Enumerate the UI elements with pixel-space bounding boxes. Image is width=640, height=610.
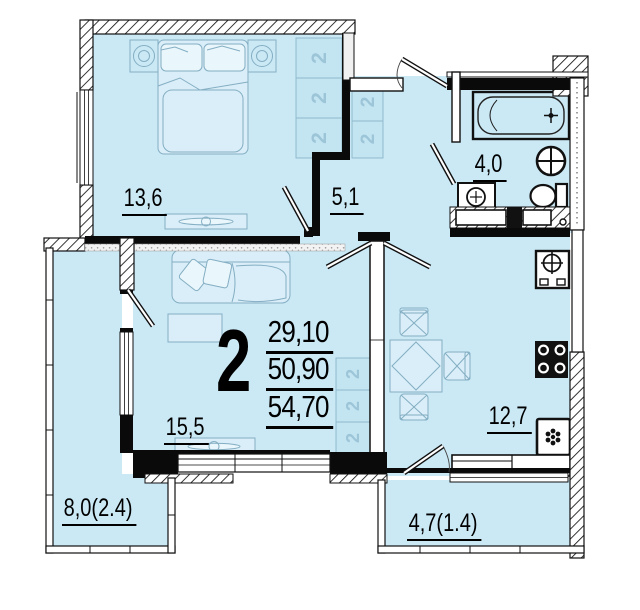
- stove-icon: [535, 341, 568, 378]
- vent-shaft-icon: [450, 207, 570, 228]
- window-icon: [120, 332, 133, 415]
- sofa-icon: [172, 250, 290, 303]
- dining-table-icon: [390, 340, 442, 392]
- bed-icon: [158, 40, 248, 154]
- bathtub-icon: [473, 92, 569, 139]
- window-icon: [77, 90, 93, 185]
- svg-text:2: 2: [358, 134, 379, 145]
- svg-text:2: 2: [308, 52, 331, 64]
- svg-text:2: 2: [358, 97, 379, 108]
- fridge-icon: [537, 419, 570, 455]
- total-area-value: 54,70: [266, 389, 333, 429]
- wardrobe-hanger-icon: 2 2 2: [336, 358, 370, 454]
- floor-plan: 2 2 2 2 2 2 2 2: [0, 0, 640, 610]
- svg-text:2: 2: [343, 401, 363, 411]
- svg-text:2: 2: [308, 132, 331, 144]
- heated-area-value: 50,90: [266, 351, 333, 391]
- bathroom-area-label: 4,0: [473, 150, 506, 182]
- svg-text:2: 2: [308, 92, 331, 104]
- living-area-value: 29,10: [266, 314, 333, 354]
- wardrobe-hanger-icon: 2 2: [352, 84, 383, 158]
- coffee-table-icon: [168, 314, 222, 342]
- toilet-icon: [531, 184, 568, 207]
- dresser-tv-icon: [165, 214, 247, 229]
- svg-text:2: 2: [343, 369, 363, 379]
- balcony-bottom-area-label: 4,7(1.4): [407, 509, 482, 541]
- chair-icon: [444, 352, 470, 380]
- rooms-count-badge: 2: [216, 330, 251, 392]
- balcony-left-area-label: 8,0(2.4): [62, 494, 137, 526]
- window-icon: [450, 473, 568, 482]
- chair-icon: [400, 394, 428, 420]
- chair-icon: [400, 308, 428, 336]
- kitchen-area-label: 12,7: [487, 402, 532, 434]
- living-room-area-label: 15,5: [164, 413, 209, 445]
- washbasin-icon: [536, 146, 566, 176]
- svg-text:2: 2: [343, 433, 363, 443]
- kitchen-sink-icon: [536, 251, 569, 288]
- window-icon: [178, 454, 330, 472]
- wardrobe-hanger-icon: 2 2 2: [296, 38, 342, 158]
- bedroom-area-label: 13,6: [122, 184, 167, 216]
- hall-area-label: 5,1: [330, 183, 363, 215]
